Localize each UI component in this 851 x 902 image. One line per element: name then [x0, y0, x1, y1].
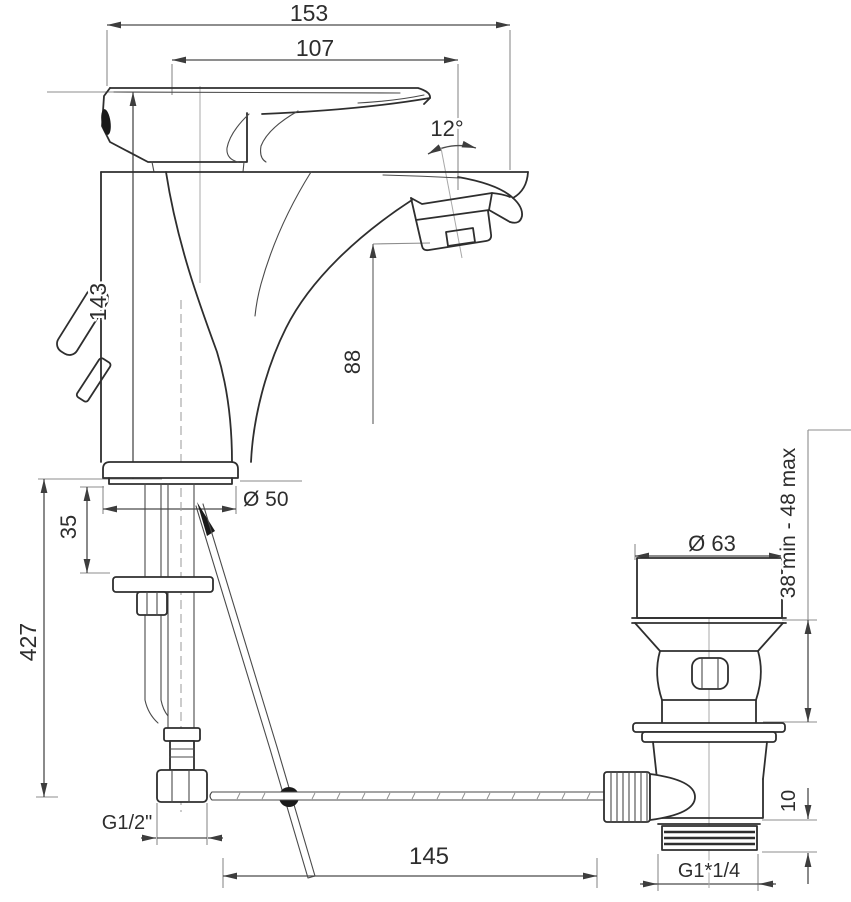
- label-base-diameter: Ø 50: [243, 488, 289, 511]
- label-body-height: 143: [85, 283, 111, 321]
- spout-body: [101, 172, 528, 462]
- label-waste-mount-range: 38 min - 48 max: [777, 447, 800, 598]
- label-supply-thread: G1/2": [102, 812, 152, 834]
- label-rod-length: 145: [409, 843, 449, 870]
- under-counter-assembly: [113, 484, 605, 878]
- handle-index-dot: [100, 109, 113, 136]
- label-aerator-angle: 12°: [430, 116, 463, 141]
- angle-arc: [428, 146, 476, 154]
- pop-up-rod: [196, 502, 315, 878]
- label-waste-tail-height: 10: [778, 790, 800, 812]
- pop-up-waste-drain: [604, 558, 786, 888]
- waste-flange: [633, 723, 785, 732]
- aerator-outlet: [446, 228, 475, 246]
- lever-handle: [110, 88, 430, 114]
- drawing-canvas: 153 107 12° 143 88 35 427 Ø 50 G1/2" 145…: [0, 0, 851, 902]
- supply-hose-fitting: [157, 728, 207, 802]
- label-overall-width: 153: [290, 0, 328, 26]
- base-flange: [103, 462, 238, 484]
- horizontal-linkage-rod: [210, 787, 605, 807]
- dimension-lines: [44, 25, 808, 884]
- waste-plug-cap: [637, 558, 782, 618]
- label-hose-drop-length: 427: [15, 623, 41, 661]
- faucet-body: [54, 86, 528, 812]
- label-spout-reach: 107: [296, 35, 334, 61]
- g-half-connector: [157, 770, 207, 802]
- rod-dome-boss: [650, 774, 695, 820]
- mounting-nut: [137, 592, 167, 615]
- faucet-technical-drawing: 153 107 12° 143 88 35 427 Ø 50 G1/2" 145…: [0, 0, 851, 902]
- label-deck-clearance: 35: [56, 515, 81, 539]
- label-waste-thread: G1*1/4: [678, 860, 740, 882]
- aerator-axis-line: [441, 148, 462, 258]
- overflow-window: [692, 658, 728, 689]
- waste-threaded-tail: [662, 826, 757, 850]
- label-spout-outlet-height: 88: [340, 350, 365, 374]
- aerator: [411, 193, 510, 250]
- mixer-head: [100, 88, 298, 172]
- mounting-plate: [113, 577, 213, 592]
- label-waste-cap-diameter: Ø 63: [688, 531, 736, 556]
- rod-adjuster: [604, 772, 695, 822]
